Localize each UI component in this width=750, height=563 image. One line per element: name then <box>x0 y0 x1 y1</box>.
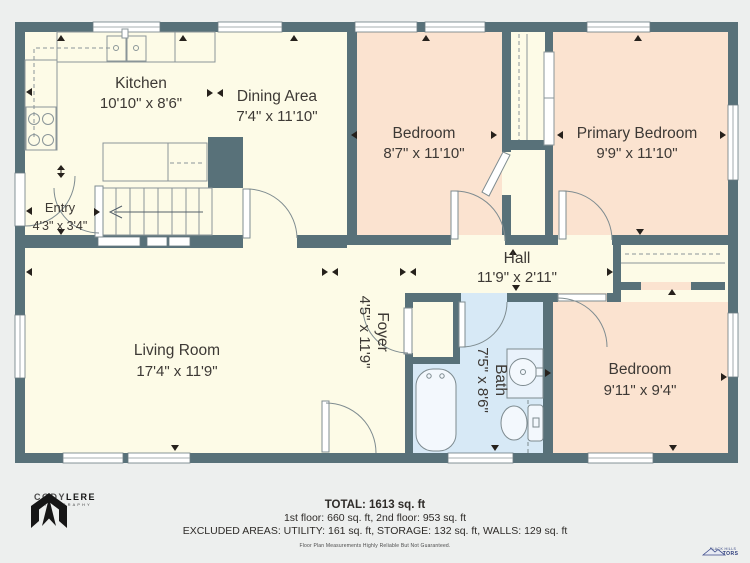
excluded-areas-text: EXCLUDED AREAS: UTILITY: 161 sq. ft, STO… <box>0 525 750 538</box>
floor-plan-drawing: Kitchen 10'10" x 8'6" Dining Area 7'4" x… <box>0 0 750 563</box>
photographer-logo-icon <box>26 491 72 531</box>
living-door-leaf <box>322 401 329 452</box>
label-bedroom-1: Bedroom <box>393 125 456 142</box>
bedroom1-door-leaf <box>451 191 458 239</box>
dims-dining-area: 7'4" x 11'10" <box>236 108 317 125</box>
dims-primary-bedroom: 9'9" x 11'10" <box>596 145 677 162</box>
dims-hall: 11'9" x 2'11" <box>477 269 557 286</box>
photographer-logo: CODYLERE PHOTOGRAPHY <box>26 491 104 507</box>
dims-kitchen: 10'10" x 8'6" <box>100 95 182 112</box>
label-dining-area: Dining Area <box>237 88 318 105</box>
floor-areas-text: 1st floor: 660 sq. ft, 2nd floor: 953 sq… <box>0 512 750 525</box>
sink-vanity-icon <box>507 349 543 398</box>
bathtub-icon <box>416 369 456 451</box>
realtor-logo: BLACK HILLS REALTORS <box>701 547 745 557</box>
primary-door-leaf <box>559 191 566 239</box>
label-living-room: Living Room <box>134 342 220 359</box>
label-kitchen: Kitchen <box>115 75 167 92</box>
label-bath: Bath <box>492 364 509 396</box>
dims-bath: 7'5" x 8'6" <box>474 347 491 413</box>
label-primary-bedroom: Primary Bedroom <box>577 125 698 142</box>
dims-entry: 4'3" x 3'4" <box>33 219 88 233</box>
disclaimer-text: Floor Plan Measurements Highly Reliable … <box>0 543 750 549</box>
toilet-icon <box>501 405 543 441</box>
dining-door-leaf <box>243 189 250 238</box>
bath-door-leaf <box>459 302 465 347</box>
label-hall: Hall <box>504 250 531 267</box>
floor-foyer-closet <box>413 302 453 357</box>
dims-bedroom-2: 9'11" x 9'4" <box>604 382 677 399</box>
area-summary: TOTAL: 1613 sq. ft 1st floor: 660 sq. ft… <box>0 499 750 549</box>
foyer-closet-door-leaf <box>404 308 412 354</box>
label-foyer: Foyer <box>374 312 391 352</box>
floor-plan-page: Kitchen 10'10" x 8'6" Dining Area 7'4" x… <box>0 0 750 563</box>
label-entry: Entry <box>45 200 76 215</box>
dims-bedroom-1: 8'7" x 11'10" <box>383 145 464 162</box>
dims-living-room: 17'4" x 11'9" <box>136 363 217 380</box>
label-bedroom-2: Bedroom <box>609 361 672 378</box>
dims-foyer: 4'5" x 11'9" <box>356 296 373 369</box>
total-area-text: TOTAL: 1613 sq. ft <box>0 499 750 512</box>
utility-block <box>208 137 243 188</box>
bedroom2-door-leaf <box>558 294 606 301</box>
front-door-opening <box>15 173 25 226</box>
mountain-icon <box>701 547 727 556</box>
